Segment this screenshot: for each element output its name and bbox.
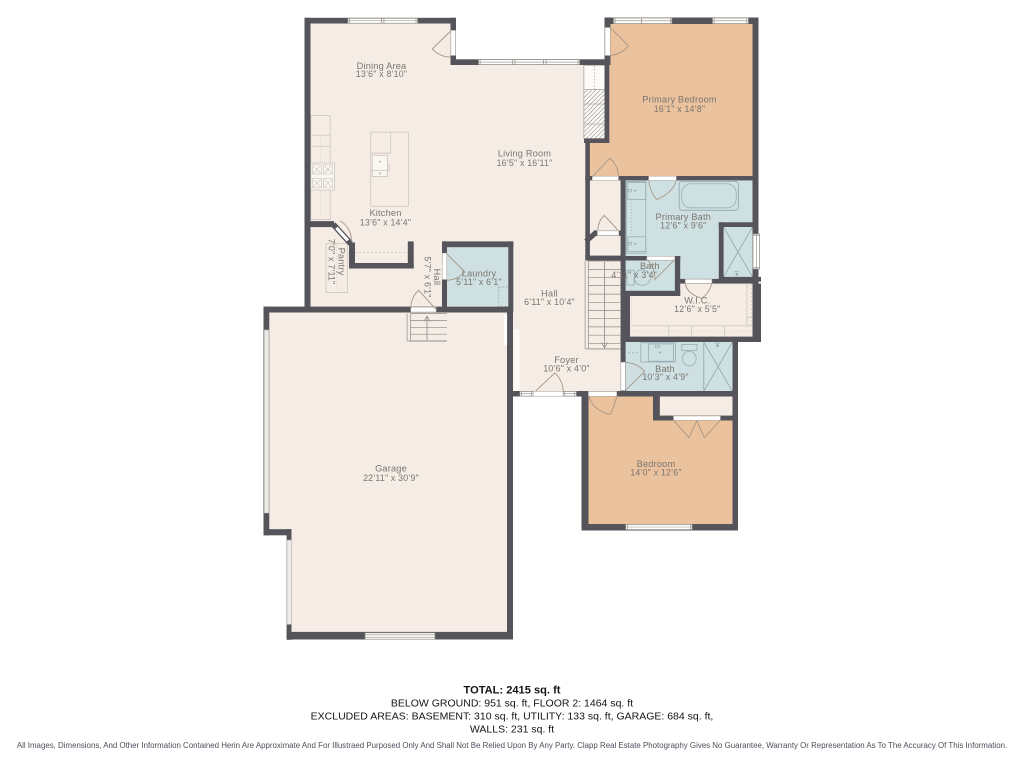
svg-text:10’3" x 4’9": 10’3" x 4’9": [642, 372, 688, 382]
svg-text:10’6" x 4’0": 10’6" x 4’0": [543, 363, 589, 373]
svg-text:BELOW GROUND: 951 sq. ft, FLOO: BELOW GROUND: 951 sq. ft, FLOOR 2: 1464 …: [391, 698, 633, 710]
svg-text:Primary Bedroom: Primary Bedroom: [642, 94, 717, 104]
svg-text:4’11" x 3’4": 4’11" x 3’4": [611, 270, 657, 280]
svg-text:TOTAL: 2415 sq. ft: TOTAL: 2415 sq. ft: [464, 685, 561, 697]
svg-text:Garage: Garage: [375, 464, 407, 474]
svg-text:12’6" x 5’5": 12’6" x 5’5": [674, 304, 720, 314]
svg-text:16’1" x 14’8": 16’1" x 14’8": [654, 104, 705, 114]
svg-text:EXCLUDED AREAS: BASEMENT: 310: EXCLUDED AREAS: BASEMENT: 310 sq. ft, UT…: [311, 711, 714, 723]
svg-text:14’0" x 12’6": 14’0" x 12’6": [630, 468, 681, 478]
svg-text:All Images, Dimensions, And Ot: All Images, Dimensions, And Other Inform…: [17, 741, 1007, 750]
svg-text:12’6" x 9’6": 12’6" x 9’6": [660, 221, 706, 231]
svg-text:Hall: Hall: [432, 269, 442, 286]
svg-text:6’11" x 10’4": 6’11" x 10’4": [524, 297, 575, 307]
svg-text:7’0" x 7’11": 7’0" x 7’11": [327, 239, 337, 285]
svg-text:16’5" x 16’11": 16’5" x 16’11": [497, 158, 553, 168]
svg-text:22’11" x 30’9": 22’11" x 30’9": [363, 473, 419, 483]
svg-text:13’6" x 14’4": 13’6" x 14’4": [360, 217, 411, 227]
svg-text:13’6" x 8’10": 13’6" x 8’10": [356, 69, 407, 79]
svg-text:Pantry: Pantry: [336, 248, 346, 276]
svg-text:WALLS: 231 sq. ft: WALLS: 231 sq. ft: [470, 724, 554, 736]
svg-text:5’7" x 6’1": 5’7" x 6’1": [422, 256, 432, 297]
svg-text:5’11" x 6’1": 5’11" x 6’1": [456, 277, 502, 287]
